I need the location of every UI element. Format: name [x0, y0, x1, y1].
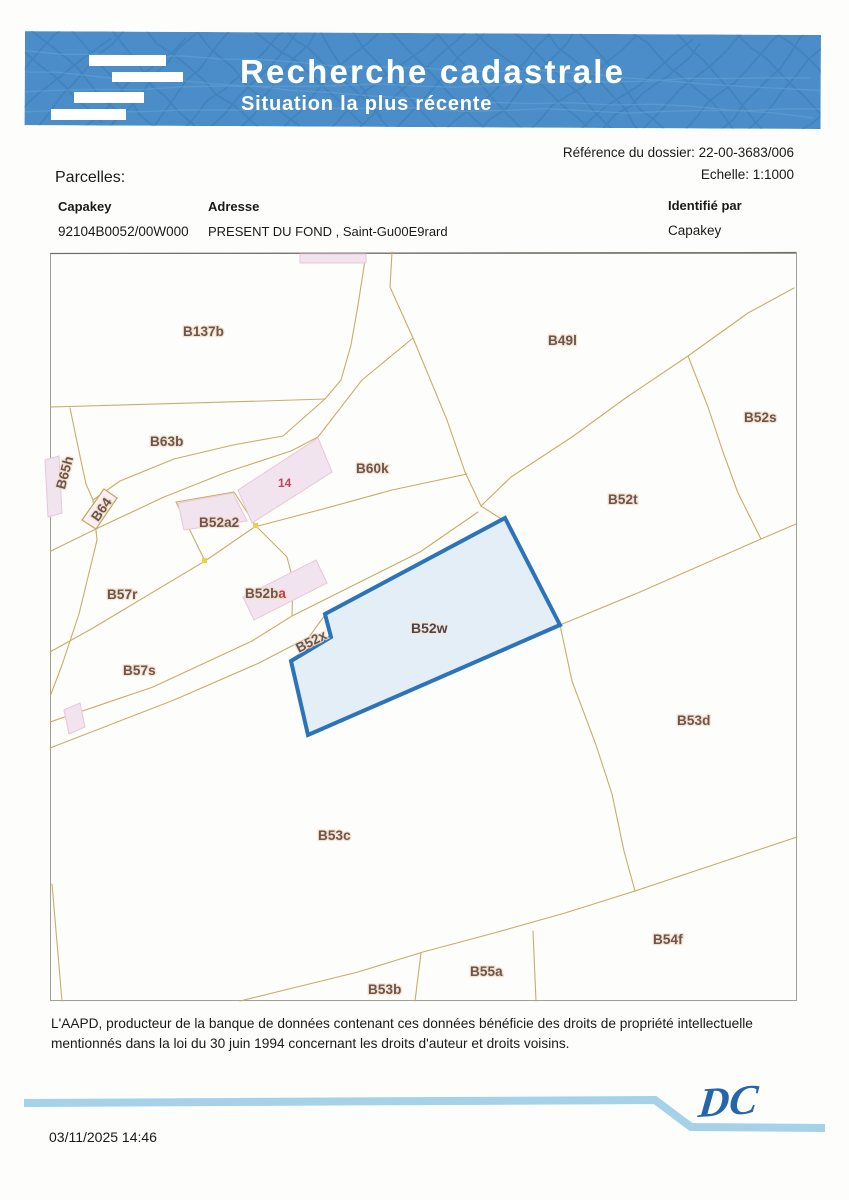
- svg-text:B53d: B53d: [677, 713, 710, 728]
- svg-text:B52ba: B52ba: [245, 586, 286, 601]
- svg-text:B52s: B52s: [744, 410, 777, 425]
- svg-text:B137b: B137b: [183, 324, 224, 339]
- svg-text:B57r: B57r: [107, 587, 138, 602]
- svg-text:B52a2: B52a2: [199, 515, 239, 530]
- svg-text:B53c: B53c: [318, 828, 351, 843]
- svg-text:B53b: B53b: [368, 982, 401, 997]
- svg-text:B57s: B57s: [123, 663, 156, 678]
- svg-text:B55a: B55a: [470, 964, 503, 979]
- svg-text:B49l: B49l: [548, 333, 577, 348]
- svg-text:B60k: B60k: [356, 461, 389, 476]
- svg-text:B54f: B54f: [653, 932, 683, 947]
- svg-text:B52t: B52t: [608, 492, 638, 507]
- svg-text:B63b: B63b: [150, 434, 183, 449]
- svg-text:B52w: B52w: [411, 620, 448, 636]
- svg-text:14: 14: [278, 476, 292, 490]
